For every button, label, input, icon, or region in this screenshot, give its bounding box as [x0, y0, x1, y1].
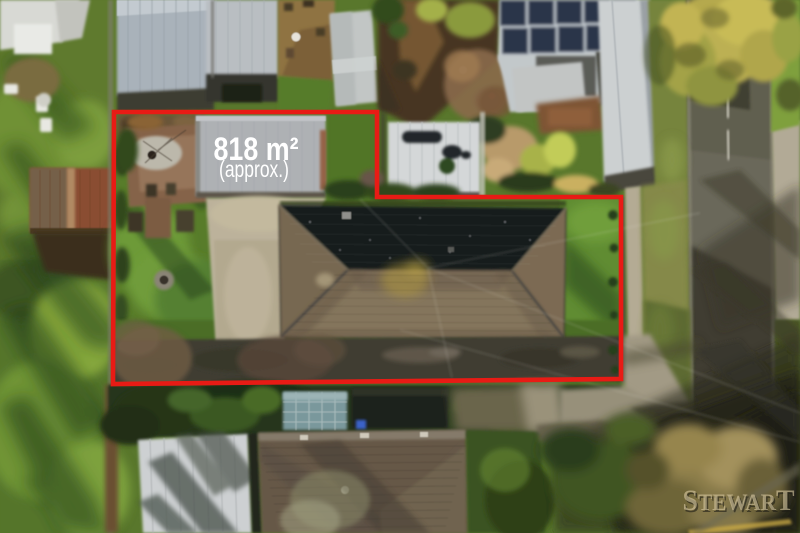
svg-text:(approx.): (approx.) [219, 156, 289, 182]
